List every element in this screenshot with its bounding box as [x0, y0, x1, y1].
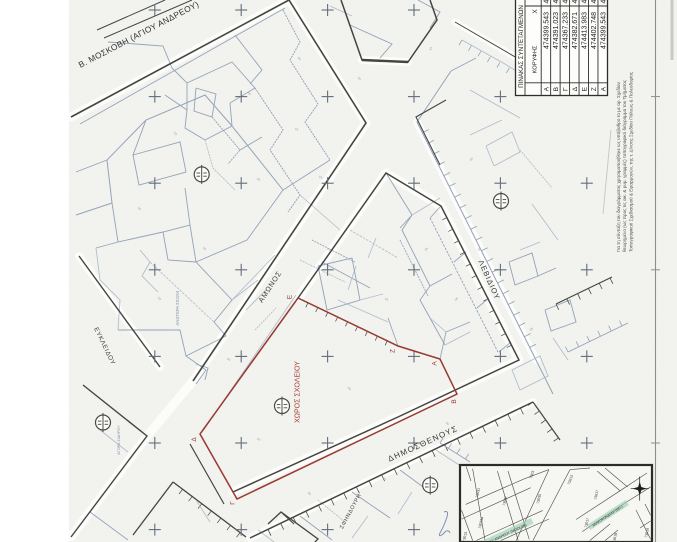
svg-text:Δ: Δ	[572, 86, 579, 91]
svg-text:Ζ: Ζ	[390, 349, 397, 353]
svg-text:4205466.08: 4205466.08	[591, 0, 598, 4]
svg-text:ΚΟΡΥΦΗΣ: ΚΟΡΥΦΗΣ	[533, 45, 539, 73]
svg-text:ΑΓΟΡΑ ΣΙΔΗΡΟΥ: ΑΓΟΡΑ ΣΙΔΗΡΟΥ	[117, 425, 121, 455]
svg-text:ΠΙΝΑΚΑΣ ΣΥΝΤΕΤΑΓΜΕΝΩΝ: ΠΙΝΑΚΑΣ ΣΥΝΤΕΤΑΓΜΕΝΩΝ	[518, 5, 525, 88]
svg-text:Α: Α	[600, 86, 607, 91]
svg-text:Β: Β	[553, 86, 560, 91]
svg-text:Α: Α	[432, 361, 439, 366]
svg-text:ΧΩΡΟΣ ΣΧΟΛΕΙΟΥ: ΧΩΡΟΣ ΣΧΟΛΕΙΟΥ	[295, 361, 302, 423]
svg-text:Τοπογραφικού Σχεδιασμού & Εφαρ: Τοπογραφικού Σχεδιασμού & Εφαρμογών, της…	[627, 71, 633, 252]
svg-text:ΑΝΩΤΕΡΑ ΣΧΟΛΗ: ΑΝΩΤΕΡΑ ΣΧΟΛΗ	[175, 291, 180, 326]
svg-text:Α: Α	[544, 86, 551, 91]
svg-text:4205451.80: 4205451.80	[553, 0, 560, 4]
svg-text:Γ: Γ	[230, 501, 237, 505]
svg-text:Β: Β	[451, 399, 458, 403]
svg-text:474399.543: 474399.543	[544, 12, 551, 49]
svg-text:θεωρημένο (ως προς τις οικ. &: θεωρημένο (ως προς τις οικ. & ρυμ. γραμμ…	[621, 79, 627, 252]
svg-text:474399.543: 474399.543	[600, 12, 607, 49]
svg-text:Ε: Ε	[581, 86, 588, 91]
svg-text:4205476.12: 4205476.12	[600, 0, 607, 4]
svg-text:474402.748: 474402.748	[591, 12, 598, 49]
svg-text:Γ: Γ	[562, 87, 569, 91]
svg-text:Ζ: Ζ	[591, 87, 598, 91]
svg-text:474413.983: 474413.983	[581, 12, 588, 49]
svg-text:Για τη σύνταξη του διαγράμματο: Για τη σύνταξη του διαγράμματος χρησιμοπ…	[615, 82, 622, 252]
svg-text:4205430.15: 4205430.15	[581, 0, 588, 4]
svg-text:4205420.97: 4205420.97	[562, 0, 569, 4]
svg-text:Δ: Δ	[191, 437, 198, 442]
svg-text:474391.023: 474391.023	[553, 12, 560, 49]
svg-text:474367.233: 474367.233	[562, 12, 569, 49]
svg-text:4205396.44: 4205396.44	[572, 0, 579, 4]
svg-text:474382.671: 474382.671	[572, 12, 579, 49]
svg-text:X: X	[532, 9, 539, 14]
svg-text:Ε: Ε	[287, 294, 294, 299]
svg-text:4205476.12: 4205476.12	[544, 0, 551, 4]
